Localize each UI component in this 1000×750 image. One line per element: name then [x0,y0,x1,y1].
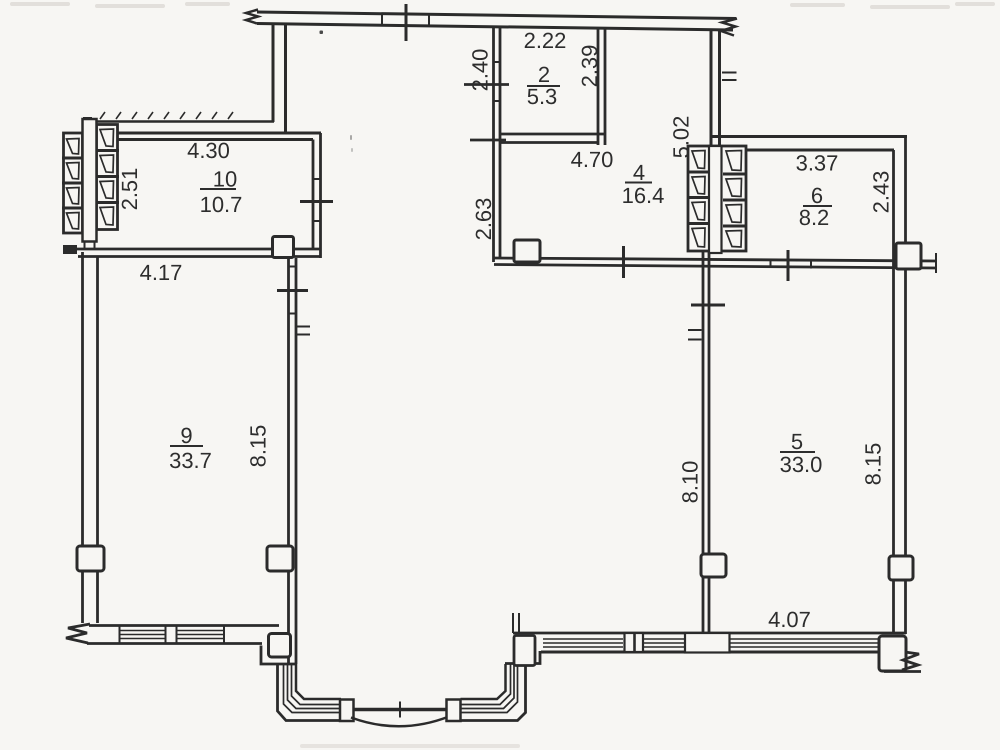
svg-text:2.39: 2.39 [577,45,602,88]
svg-text:5.3: 5.3 [527,84,558,109]
svg-text:2.40: 2.40 [468,49,493,92]
svg-text:2.43: 2.43 [869,171,894,214]
svg-text:2.51: 2.51 [117,168,142,211]
svg-text:16.4: 16.4 [622,183,665,208]
svg-text:2.22: 2.22 [524,28,567,53]
svg-text:4.17: 4.17 [140,260,183,285]
svg-text:33.0: 33.0 [780,452,823,477]
svg-text:9: 9 [180,423,192,448]
svg-text:8.10: 8.10 [678,461,703,504]
svg-text:5: 5 [791,429,803,454]
svg-text:3.37: 3.37 [796,151,839,176]
svg-text:8.15: 8.15 [246,425,271,468]
svg-text:4.07: 4.07 [768,607,811,632]
svg-text:8.15: 8.15 [861,443,886,486]
svg-text:5.02: 5.02 [669,116,694,159]
svg-text:33.7: 33.7 [169,448,212,473]
svg-text:4.30: 4.30 [187,138,230,163]
svg-text:8.2: 8.2 [799,205,830,230]
svg-text:10: 10 [213,167,237,192]
svg-text:2.63: 2.63 [471,198,496,241]
svg-text:4: 4 [633,160,645,185]
svg-text:10.7: 10.7 [200,192,243,217]
svg-text:4.70: 4.70 [571,147,614,172]
